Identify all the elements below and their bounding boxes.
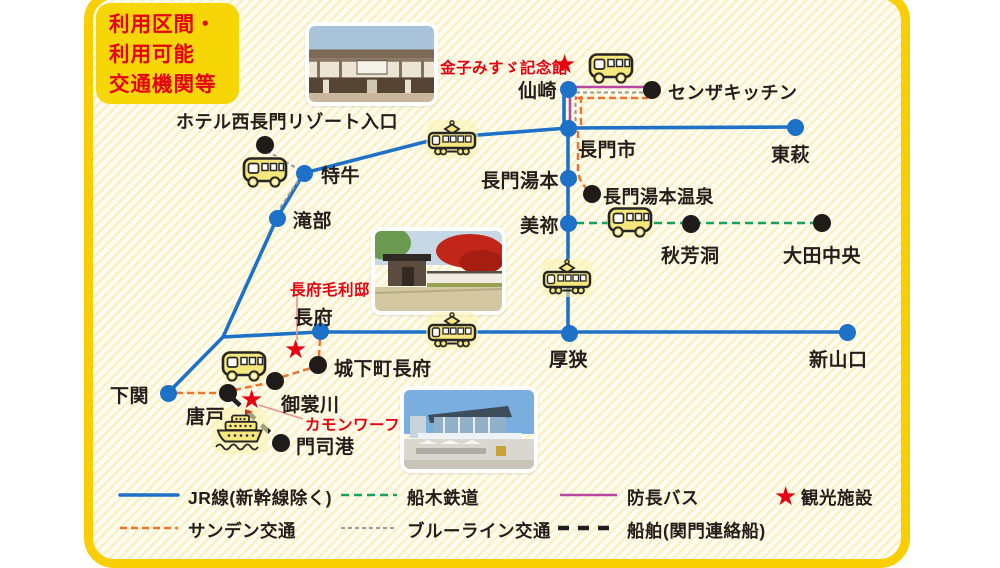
station-label-senza-kitchen: センザキッチン xyxy=(668,79,798,105)
station-dot-mine xyxy=(560,215,577,232)
legend-label-ship: 船舶(関門連絡船) xyxy=(627,518,766,543)
station-dot-takibe xyxy=(269,210,286,227)
station-dot-mimosusogawa xyxy=(266,372,284,390)
station-label-shin-yamaguchi: 新山口 xyxy=(809,345,868,372)
station-label-nagato-yumoto: 長門湯本 xyxy=(481,166,559,193)
photo-mori-gate xyxy=(371,227,506,315)
attraction-label-chofu-mori-tei: 長府毛利邸 xyxy=(290,278,370,300)
station-dot-yumoto-onsen xyxy=(583,185,601,203)
station-dot-senzaki xyxy=(560,81,577,98)
station-dot-akiyoshido xyxy=(682,215,700,233)
station-dot-ota-chuo xyxy=(813,214,831,232)
station-label-shimonoseki: 下関 xyxy=(110,381,149,408)
tram-chofu-icon xyxy=(426,312,478,350)
station-label-higashi-hagi: 東萩 xyxy=(771,140,810,167)
station-dot-mojiko xyxy=(272,434,290,452)
bus-hotel-icon xyxy=(242,156,288,188)
legend-label-jr: JR線(新幹線除く) xyxy=(188,485,332,510)
station-label-hotel-nishinagato: ホテル西長門リゾート入口 xyxy=(176,108,398,134)
legend-label-sanden: サンデン交通 xyxy=(188,518,296,543)
bus-senzaki-icon xyxy=(588,52,634,84)
route-sanden-mimosuso xyxy=(282,368,311,377)
station-label-ota-chuo: 大田中央 xyxy=(783,241,861,268)
tram-mine-icon xyxy=(541,259,593,297)
transit-map-stage: 利用区間・ 利用可能 交通機関等 仙崎長門市東萩長門湯本美祢厚狭新山口特牛滝部長… xyxy=(0,0,1000,562)
tram-nagatoshi-icon xyxy=(426,120,478,158)
usage-info-line2: 利用可能 xyxy=(109,40,239,70)
station-dot-asa xyxy=(561,325,578,342)
station-dot-nagato-yumoto xyxy=(560,170,577,187)
usage-info-box: 利用区間・ 利用可能 交通機関等 xyxy=(96,3,239,104)
station-label-yumoto-onsen: 長門湯本温泉 xyxy=(603,183,714,209)
station-label-senzaki: 仙崎 xyxy=(518,76,557,103)
bus-karato-icon xyxy=(221,350,267,382)
station-dot-hotel-nishinagato xyxy=(256,136,274,154)
photo-machiya xyxy=(305,22,438,106)
attraction-label-kamon-wharf: カモンワーフ xyxy=(305,413,400,435)
station-dot-jokamachi-chofu xyxy=(309,356,327,374)
attraction-label-kaneko-misuzu-kinenkan: 金子みすゞ記念館 xyxy=(440,56,568,78)
usage-info-line3: 交通機関等 xyxy=(109,70,239,100)
station-label-nagatoshi: 長門市 xyxy=(578,135,637,162)
station-label-jokamachi-chofu: 城下町長府 xyxy=(334,354,432,381)
station-label-mojiko: 門司港 xyxy=(296,432,355,459)
station-dot-shin-yamaguchi xyxy=(839,324,856,341)
station-dot-nagatoshi xyxy=(560,120,577,137)
legend-label-kanko: 観光施設 xyxy=(801,485,873,510)
station-label-takibe: 滝部 xyxy=(293,206,332,233)
legend-label-bocho: 防長バス xyxy=(627,485,699,510)
station-label-mine: 美祢 xyxy=(520,211,559,238)
legend-label-funaki: 船木鉄道 xyxy=(407,485,479,510)
station-dot-karato xyxy=(219,384,237,402)
attraction-star-icon-chofu-mori-tei: ★ xyxy=(284,336,307,362)
station-dot-higashi-hagi xyxy=(787,119,804,136)
station-label-kottoi: 特牛 xyxy=(321,161,360,188)
station-label-chofu: 長府 xyxy=(294,303,333,330)
route-jr-sanin-east xyxy=(568,127,795,128)
station-dot-shimonoseki xyxy=(160,385,177,402)
station-dot-kottoi xyxy=(296,165,313,182)
legend-star-icon: ★ xyxy=(774,483,797,509)
station-label-akiyoshido: 秋芳洞 xyxy=(661,241,720,268)
bus-akiyoshi-icon xyxy=(607,206,653,238)
legend-label-blueline: ブルーライン交通 xyxy=(407,518,551,543)
photo-kamon-wharf xyxy=(400,386,538,473)
attraction-star-icon-kamon-wharf: ★ xyxy=(240,386,263,412)
station-label-asa: 厚狭 xyxy=(549,345,588,372)
route-sanden-chofu xyxy=(319,338,320,357)
usage-info-line1: 利用区間・ xyxy=(109,10,239,40)
station-label-karato: 唐戸 xyxy=(186,402,225,429)
station-dot-senza-kitchen xyxy=(643,81,661,99)
